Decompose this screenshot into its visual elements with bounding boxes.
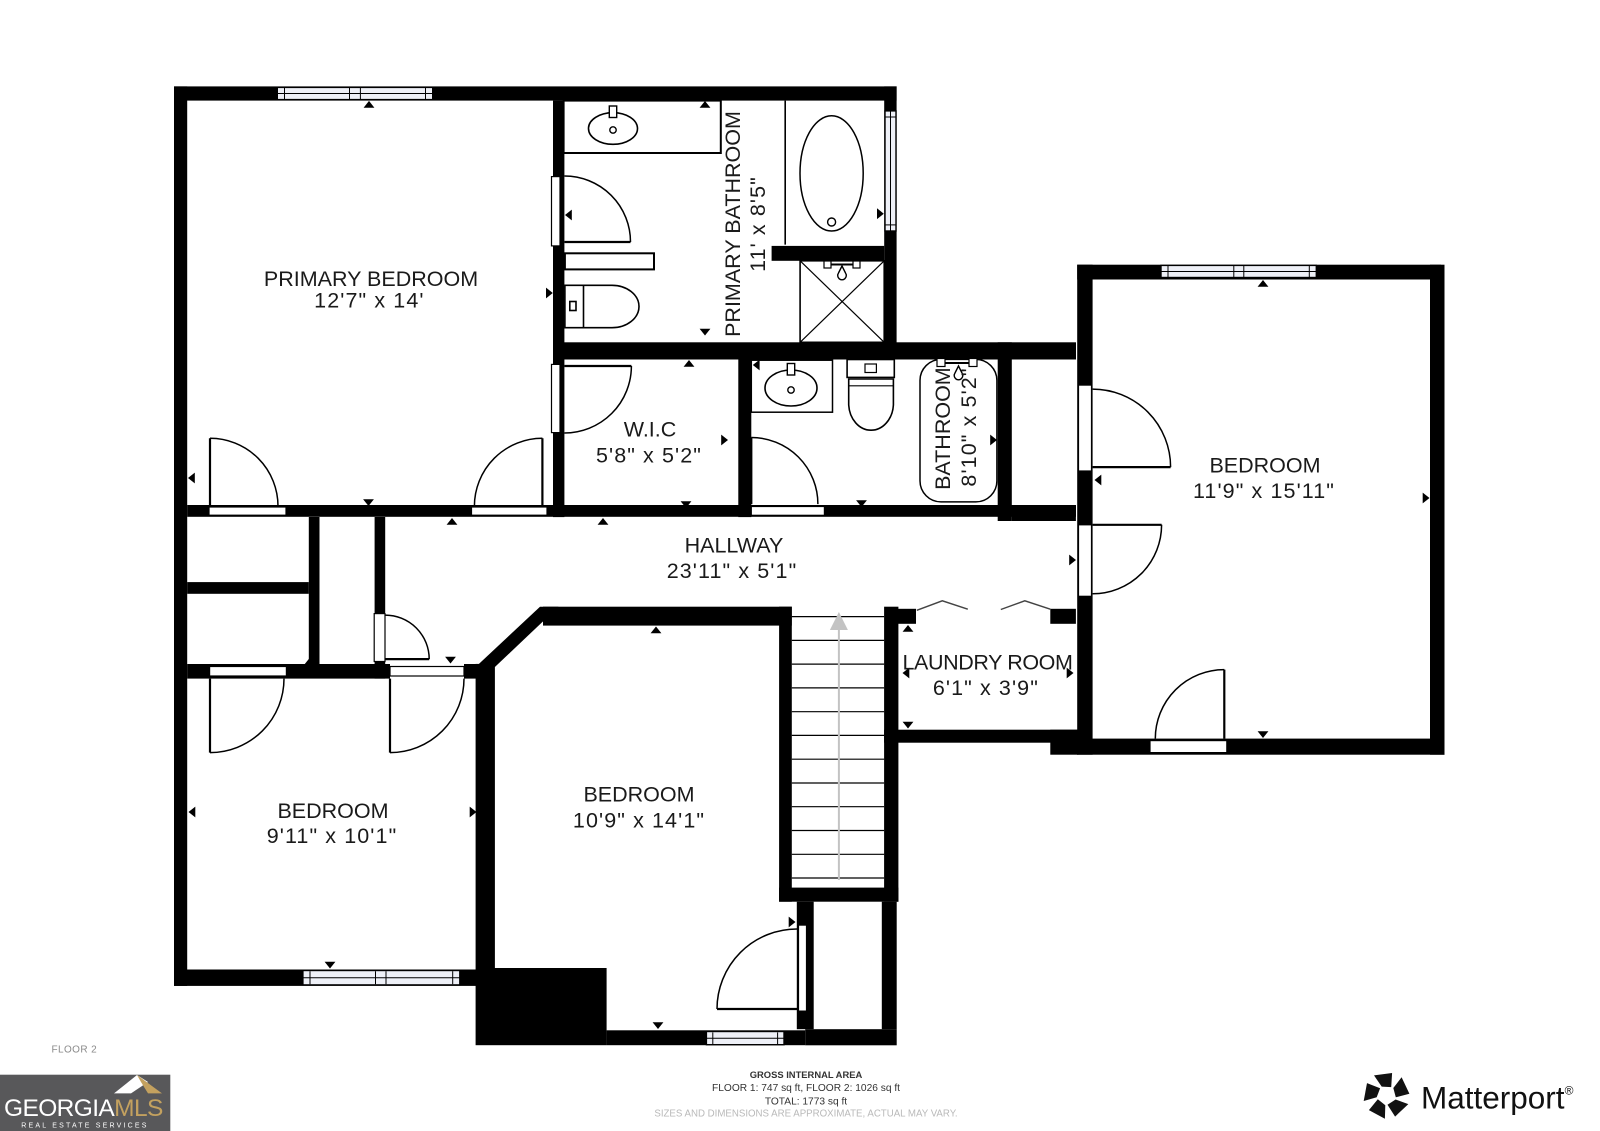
- svg-text:6'1" x 3'9": 6'1" x 3'9": [933, 676, 1039, 700]
- svg-text:FLOOR 2: FLOOR 2: [52, 1045, 98, 1056]
- svg-text:PRIMARY BATHROOM: PRIMARY BATHROOM: [721, 111, 745, 337]
- svg-text:Matterport®: Matterport®: [1421, 1080, 1574, 1116]
- svg-text:5'8" x 5'2": 5'8" x 5'2": [596, 444, 702, 468]
- svg-text:BATHROOM: BATHROOM: [931, 367, 955, 490]
- svg-text:9'11" x 10'1": 9'11" x 10'1": [267, 824, 398, 848]
- svg-text:8'10" x 5'2": 8'10" x 5'2": [957, 367, 981, 486]
- svg-text:11' x 8'5": 11' x 8'5": [746, 176, 770, 272]
- svg-text:GEORGIAMLS: GEORGIAMLS: [4, 1095, 163, 1122]
- svg-text:23'11" x 5'1": 23'11" x 5'1": [667, 559, 798, 583]
- svg-text:GROSS INTERNAL AREA: GROSS INTERNAL AREA: [750, 1069, 863, 1080]
- svg-text:12'7" x 14': 12'7" x 14': [314, 289, 424, 313]
- svg-text:TOTAL: 1773 sq ft: TOTAL: 1773 sq ft: [765, 1097, 847, 1108]
- svg-text:BEDROOM: BEDROOM: [277, 799, 388, 823]
- svg-text:10'9" x 14'1": 10'9" x 14'1": [573, 809, 705, 833]
- svg-text:11'9" x 15'11": 11'9" x 15'11": [1193, 479, 1335, 503]
- svg-text:BEDROOM: BEDROOM: [583, 783, 694, 807]
- svg-text:SIZES AND DIMENSIONS ARE APPRO: SIZES AND DIMENSIONS ARE APPROXIMATE, AC…: [654, 1109, 957, 1120]
- svg-text:FLOOR 1: 747 sq ft, FLOOR 2: 1: FLOOR 1: 747 sq ft, FLOOR 2: 1026 sq ft: [712, 1083, 900, 1094]
- svg-text:REAL ESTATE SERVICES: REAL ESTATE SERVICES: [21, 1123, 148, 1130]
- svg-text:W.I.C: W.I.C: [624, 418, 677, 442]
- svg-text:HALLWAY: HALLWAY: [685, 534, 784, 558]
- svg-text:PRIMARY BEDROOM: PRIMARY BEDROOM: [264, 267, 478, 291]
- svg-text:LAUNDRY ROOM: LAUNDRY ROOM: [902, 650, 1072, 674]
- svg-text:BEDROOM: BEDROOM: [1209, 454, 1320, 478]
